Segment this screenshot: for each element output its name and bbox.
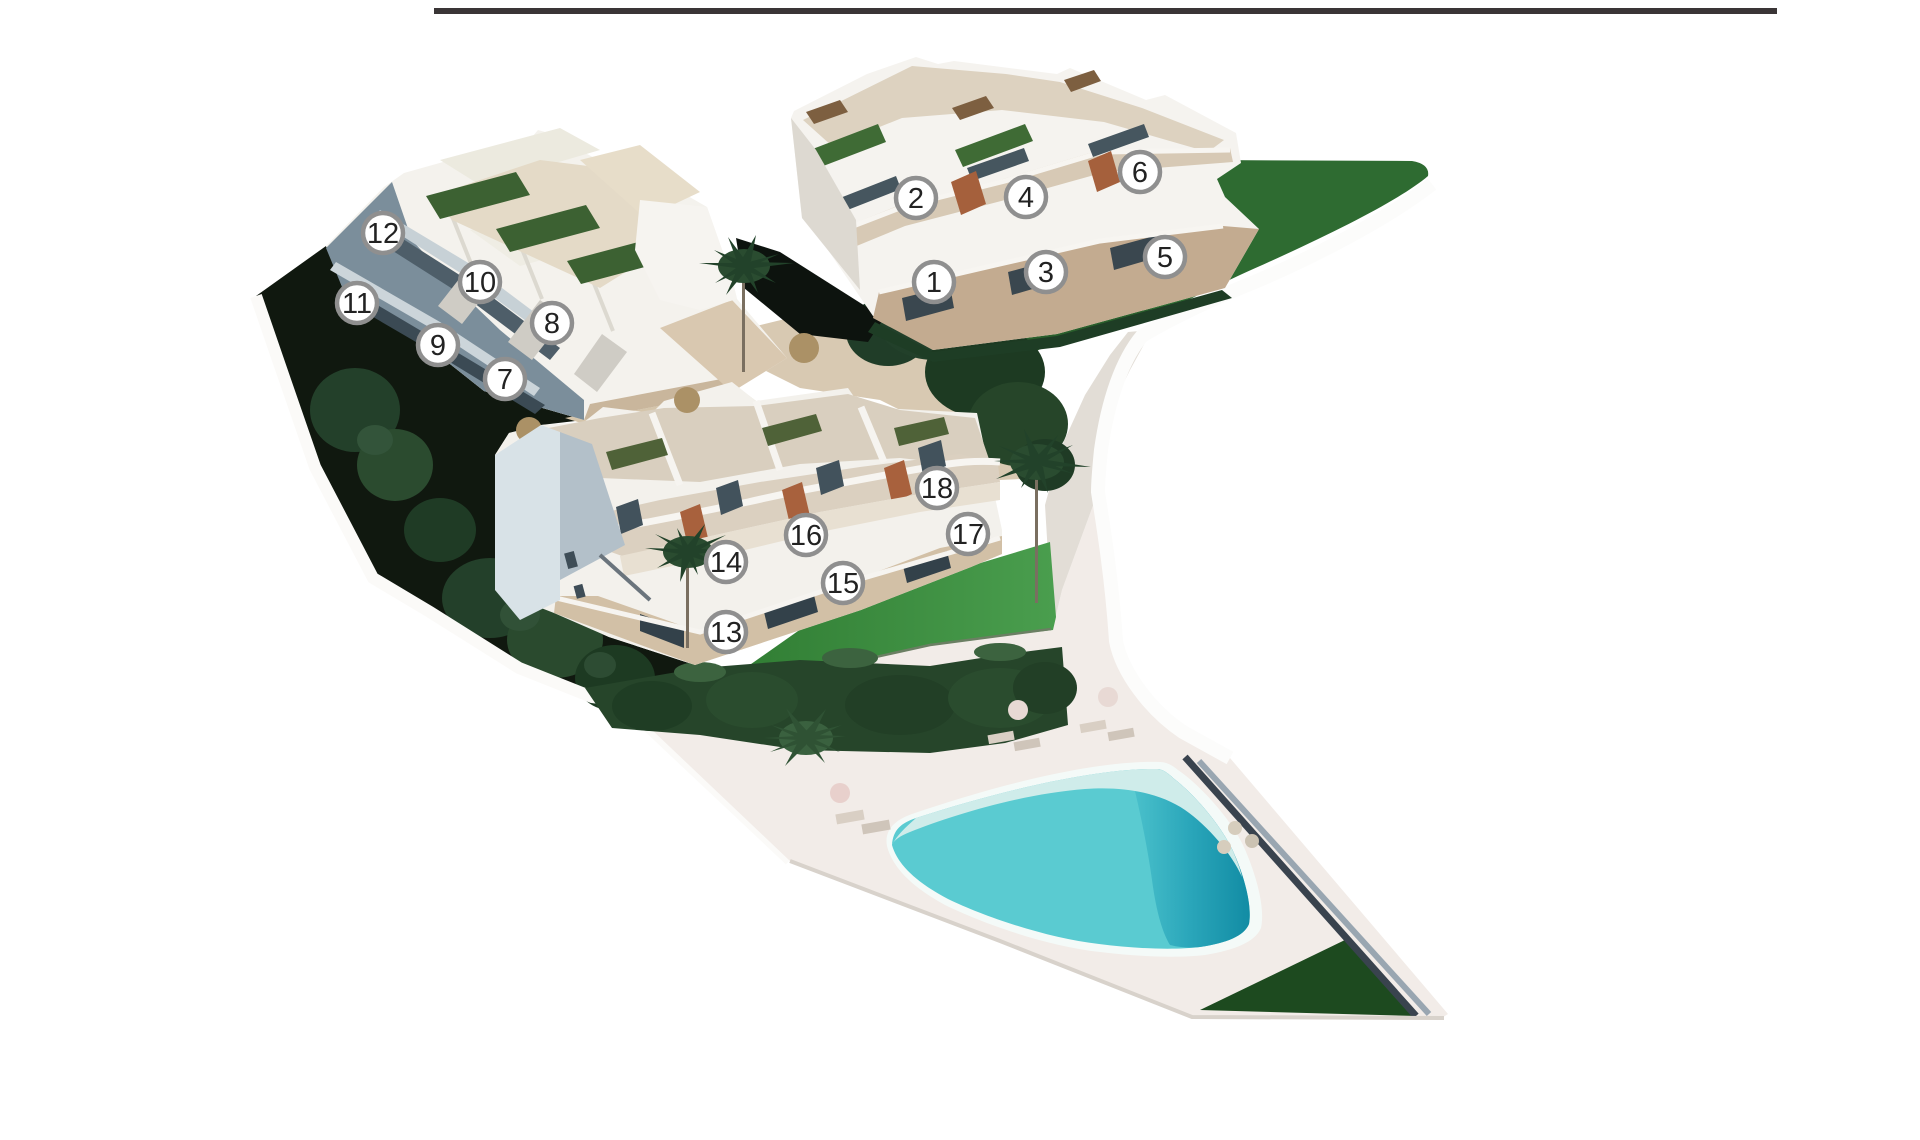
svg-text:2: 2 (908, 183, 924, 215)
svg-text:12: 12 (367, 218, 399, 250)
svg-text:10: 10 (464, 267, 496, 299)
svg-text:4: 4 (1018, 182, 1034, 214)
svg-text:11: 11 (342, 288, 372, 320)
svg-text:1: 1 (926, 267, 942, 299)
svg-text:3: 3 (1038, 257, 1054, 289)
svg-text:18: 18 (921, 473, 953, 505)
svg-text:16: 16 (790, 520, 822, 552)
svg-text:15: 15 (827, 568, 859, 600)
svg-text:8: 8 (544, 308, 560, 340)
svg-text:5: 5 (1157, 242, 1173, 274)
svg-text:7: 7 (497, 364, 513, 396)
svg-text:9: 9 (430, 330, 446, 362)
svg-text:6: 6 (1132, 157, 1148, 189)
svg-text:13: 13 (710, 617, 742, 649)
svg-text:17: 17 (952, 519, 984, 551)
svg-text:14: 14 (710, 547, 742, 579)
